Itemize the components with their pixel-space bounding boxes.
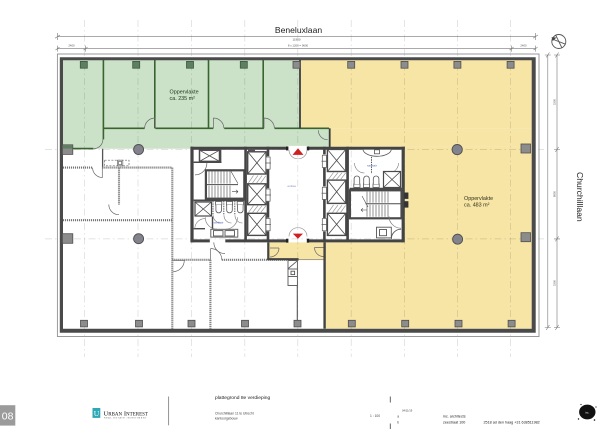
svg-text:11900: 11900 bbox=[292, 38, 300, 42]
svg-text:Beneluxlaan: Beneluxlaan bbox=[275, 25, 323, 35]
svg-text:1 : 100: 1 : 100 bbox=[370, 414, 380, 418]
svg-text:sanitair: sanitair bbox=[214, 220, 224, 224]
svg-text:2400: 2400 bbox=[68, 44, 75, 48]
svg-text:Oppervlakte: Oppervlakte bbox=[170, 90, 199, 96]
svg-text:REAL ESTATE INVESTMENT: REAL ESTATE INVESTMENT bbox=[104, 417, 147, 420]
svg-text:Oppervlakte: Oppervlakte bbox=[464, 196, 493, 202]
svg-text:ca. 235 m²: ca. 235 m² bbox=[170, 96, 196, 102]
svg-text:2400: 2400 bbox=[520, 44, 527, 48]
svg-text:plattegrond 8e verdieping: plattegrond 8e verdieping bbox=[215, 395, 270, 401]
svg-text:ca. 483 m²: ca. 483 m² bbox=[464, 202, 490, 208]
svg-text:08: 08 bbox=[2, 411, 14, 423]
svg-text:Churchilllaan 11 te Utrecht: Churchilllaan 11 te Utrecht bbox=[215, 412, 254, 416]
svg-text:8 x 1200 = 9600: 8 x 1200 = 9600 bbox=[288, 44, 309, 48]
svg-text:3300: 3300 bbox=[553, 98, 557, 105]
svg-text:entree: entree bbox=[288, 184, 297, 188]
svg-text:b: b bbox=[397, 420, 399, 424]
svg-text:3300: 3300 bbox=[553, 279, 557, 286]
svg-text:zeestraat 100: zeestraat 100 bbox=[443, 420, 465, 424]
svg-text:U: U bbox=[94, 409, 100, 418]
svg-text:Churchilllaan: Churchilllaan bbox=[575, 172, 585, 222]
svg-text:sanitair: sanitair bbox=[367, 163, 377, 167]
svg-text:URBAN INTEREST: URBAN INTEREST bbox=[104, 410, 148, 417]
svg-text:kantoorgebouw: kantoorgebouw bbox=[215, 417, 238, 421]
svg-text:8950: 8950 bbox=[553, 190, 557, 197]
svg-text:04/11/19: 04/11/19 bbox=[402, 409, 413, 413]
svg-text:2518 ad den haag +31 6385119: 2518 ad den haag +31 638511982 bbox=[484, 421, 540, 425]
svg-text:a: a bbox=[397, 415, 399, 419]
svg-text:inc.: inc. bbox=[585, 410, 589, 414]
svg-text:inc. architects: inc. architects bbox=[443, 415, 466, 419]
